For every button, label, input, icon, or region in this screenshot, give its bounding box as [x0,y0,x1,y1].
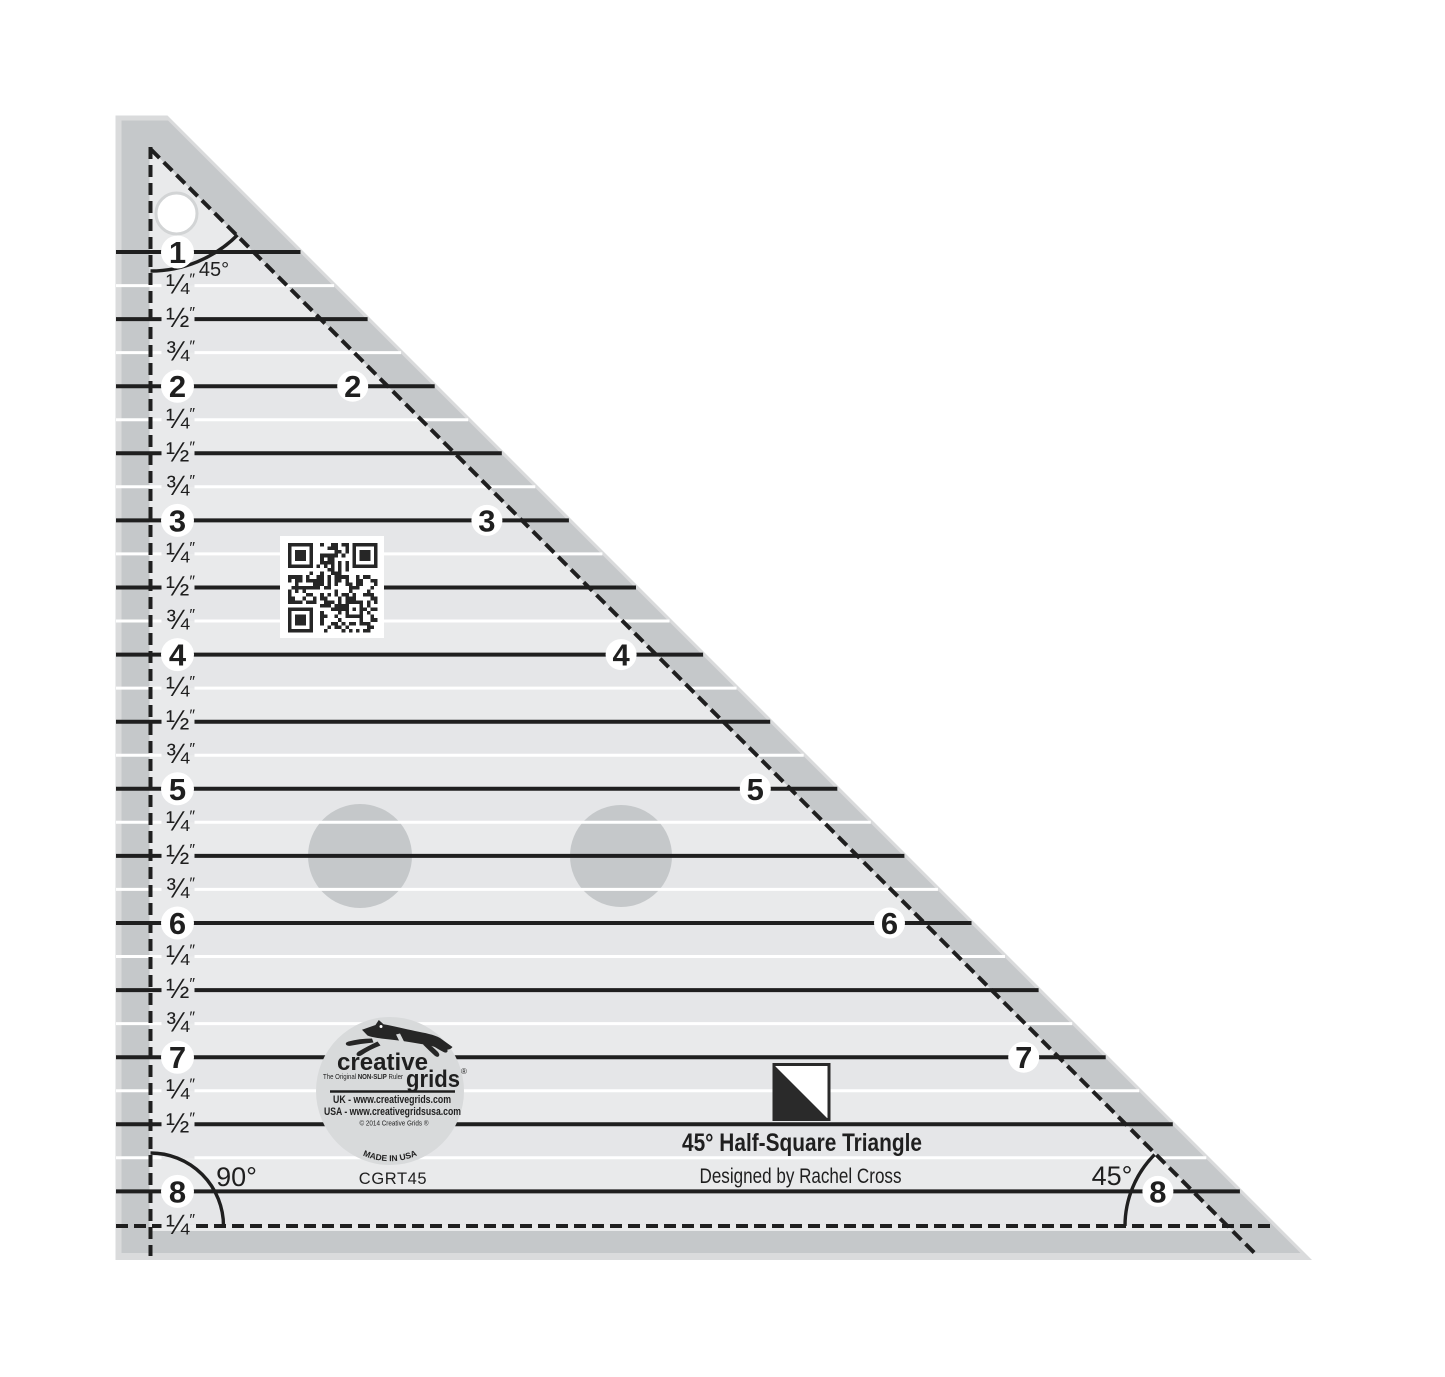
svg-text:3: 3 [169,503,186,538]
svg-text:8: 8 [169,1174,186,1209]
svg-text:5: 5 [169,772,186,807]
svg-text:6: 6 [881,906,898,941]
svg-text:3: 3 [478,503,495,538]
svg-text:© 2014 Creative Grids ®: © 2014 Creative Grids ® [360,1119,429,1128]
svg-text:grids: grids [406,1066,460,1093]
svg-text:2: 2 [344,369,361,404]
svg-text:2: 2 [169,369,186,404]
svg-text:The Original NON-SLIP Ruler: The Original NON-SLIP Ruler [323,1072,403,1081]
svg-text:5: 5 [747,772,764,807]
svg-text:4: 4 [169,638,187,673]
svg-text:45°: 45° [199,259,229,281]
svg-text:USA - www.creativegridsusa.com: USA - www.creativegridsusa.com [324,1106,461,1118]
svg-text:45°: 45° [1092,1161,1133,1191]
svg-text:Designed by Rachel Cross: Designed by Rachel Cross [700,1164,902,1188]
svg-text:UK - www.creativegrids.com: UK - www.creativegrids.com [333,1094,451,1106]
svg-text:7: 7 [1015,1040,1032,1075]
svg-text:8: 8 [1149,1174,1166,1209]
svg-text:7: 7 [169,1040,186,1075]
svg-text:CGRT45: CGRT45 [359,1170,427,1188]
svg-text:®: ® [461,1067,467,1076]
svg-text:1: 1 [169,235,186,270]
svg-text:45° Half-Square Triangle: 45° Half-Square Triangle [682,1129,922,1157]
svg-text:4: 4 [612,638,630,673]
svg-text:90°: 90° [216,1162,257,1192]
svg-text:6: 6 [169,906,186,941]
